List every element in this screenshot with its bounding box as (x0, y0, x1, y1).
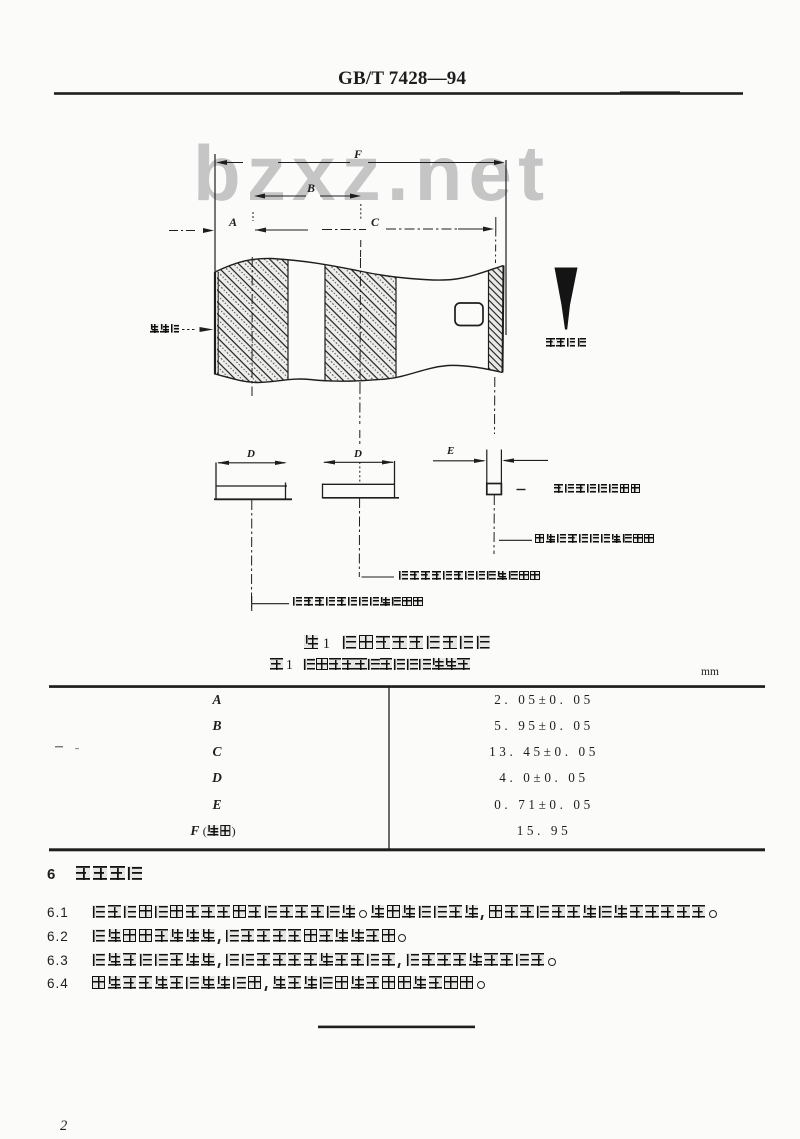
svg-text:A: A (228, 215, 237, 229)
svg-text:F: F (353, 147, 362, 161)
svg-text:D: D (246, 448, 255, 460)
svg-text:C: C (371, 215, 380, 229)
svg-text:D: D (353, 448, 362, 460)
svg-text:bzxz.net: bzxz.net (193, 129, 550, 217)
svg-text:B: B (306, 181, 315, 195)
svg-text:E: E (446, 445, 454, 457)
